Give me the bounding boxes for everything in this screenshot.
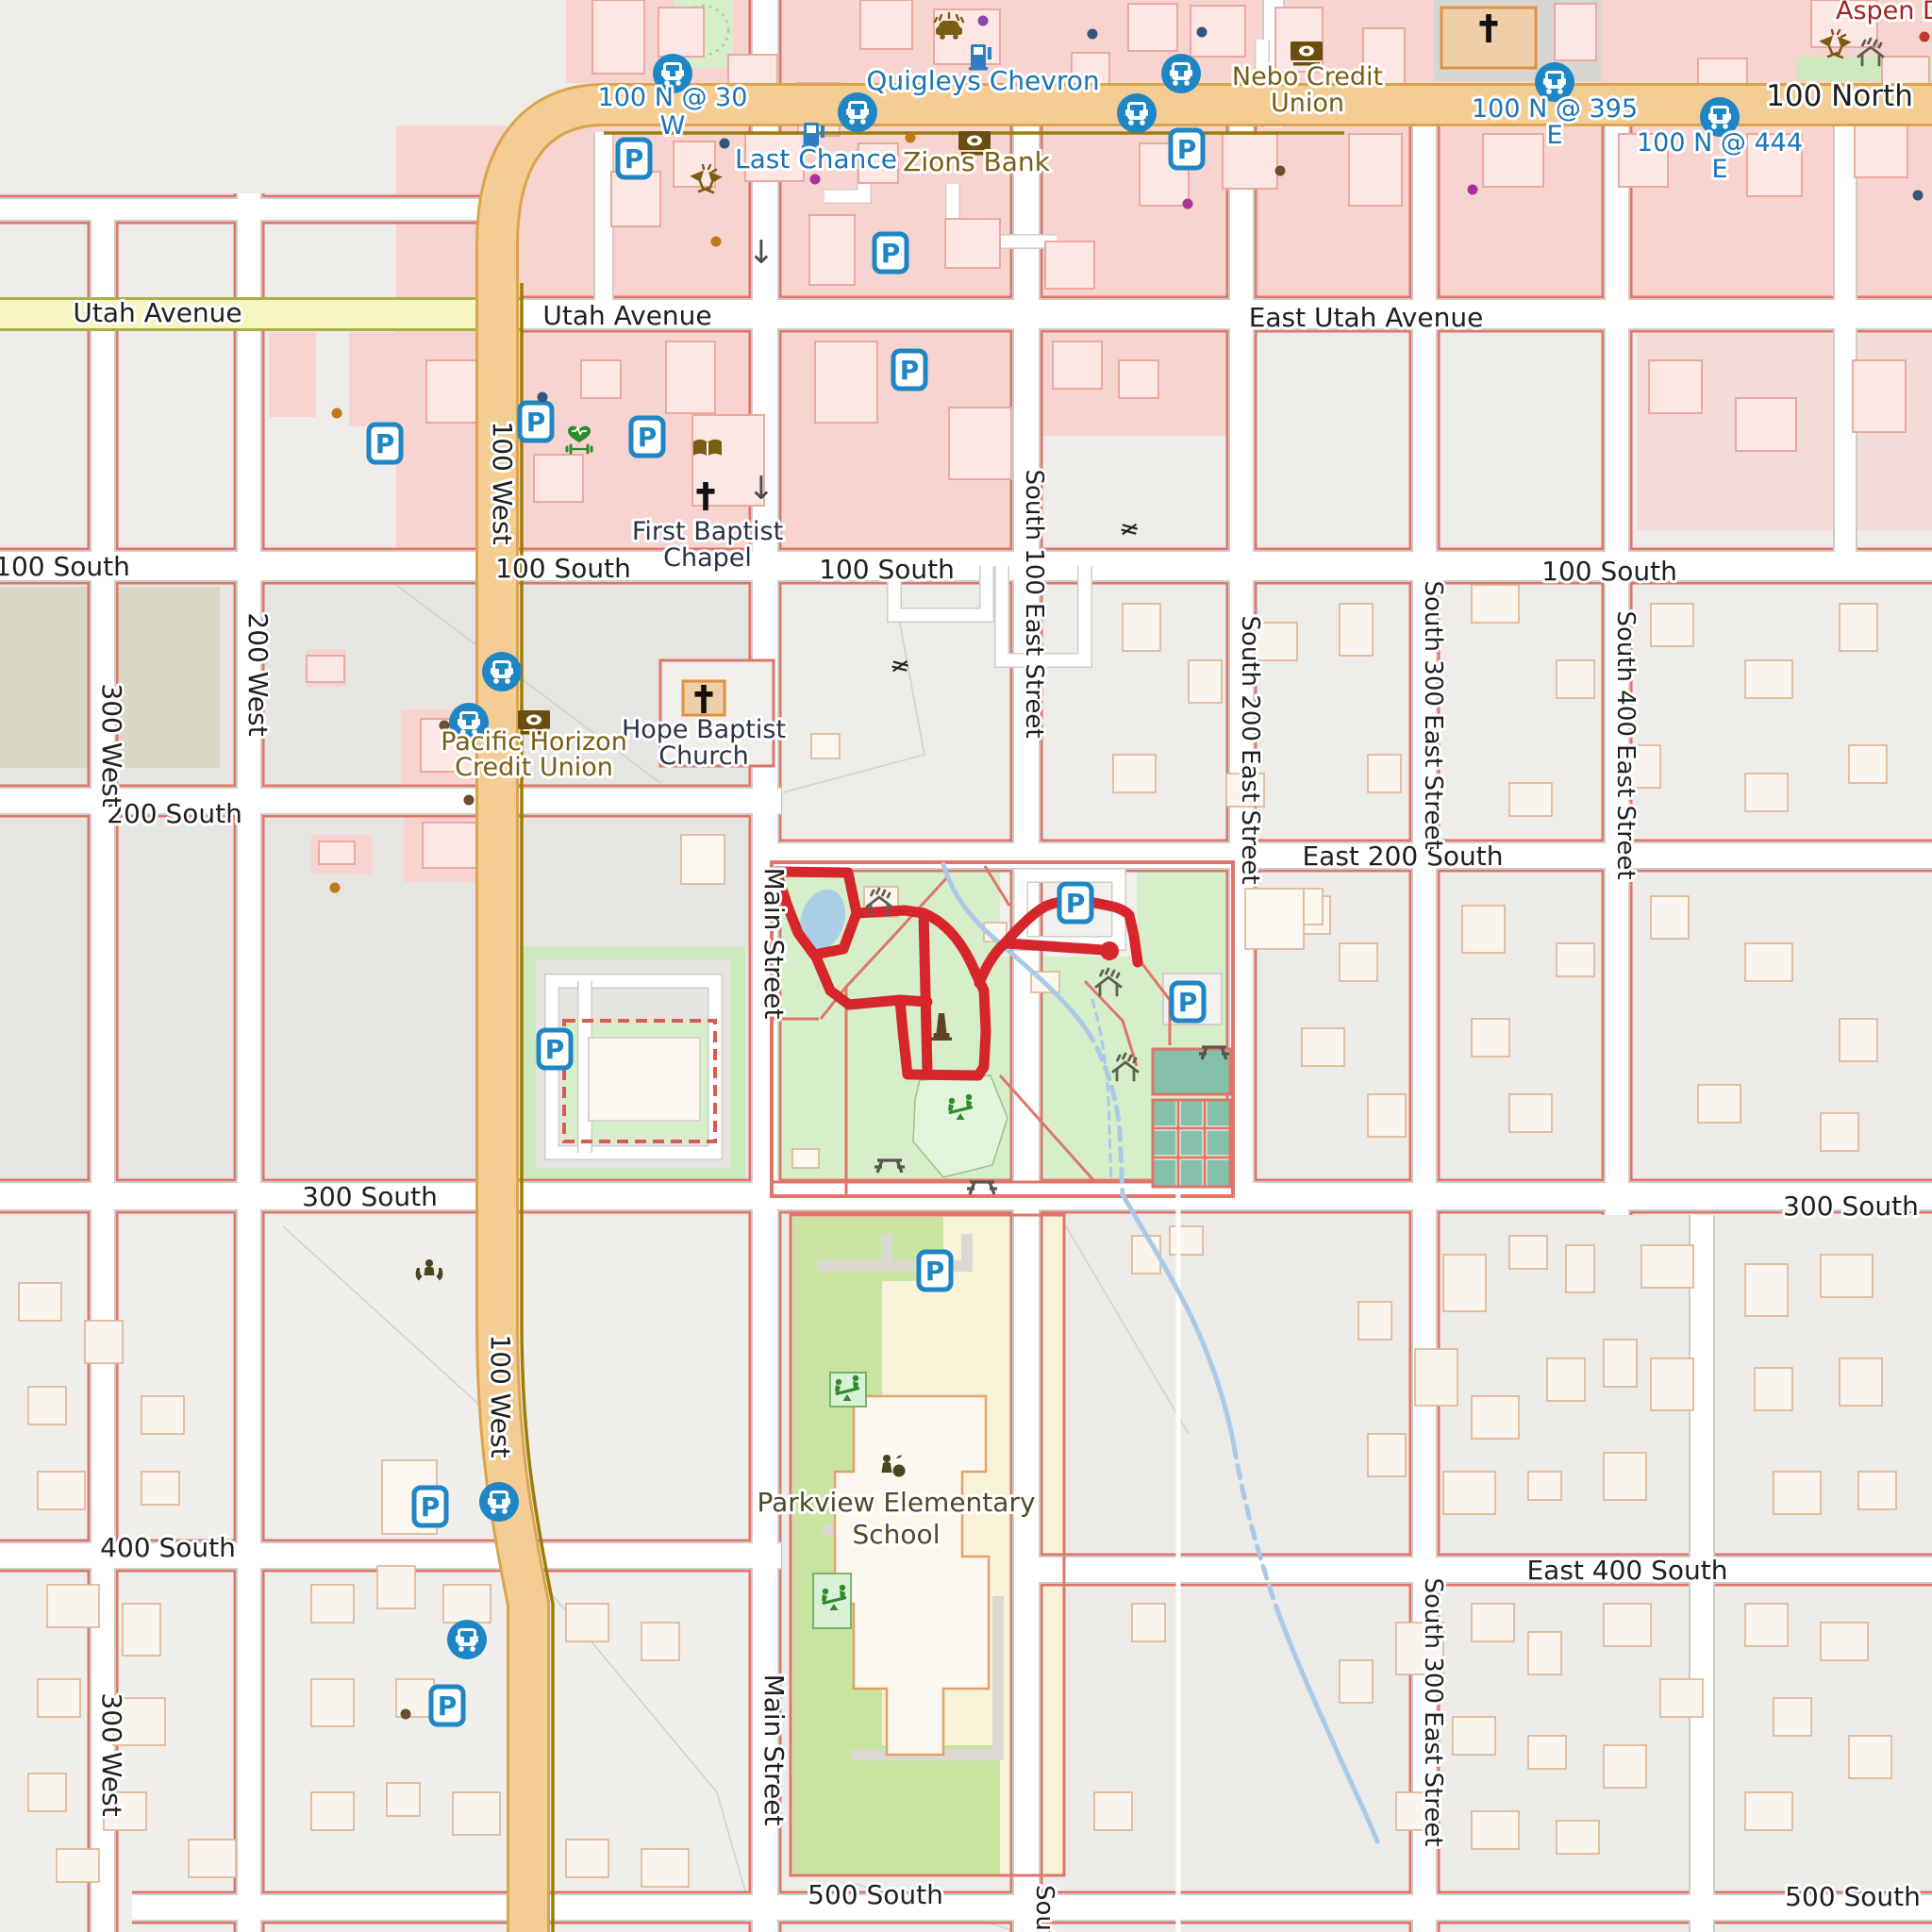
poi-dot-icon (1913, 191, 1924, 201)
poi-label: Hope Baptist (622, 715, 786, 744)
svg-text:P: P (1178, 987, 1198, 1018)
svg-text:P: P (545, 1034, 565, 1065)
svg-text:↓: ↓ (748, 234, 775, 272)
one-way-arrow-icon: ↓ (748, 470, 775, 508)
poi-label: E (1711, 155, 1727, 184)
poi-dot-icon (1183, 199, 1193, 209)
svg-text:P: P (638, 422, 658, 453)
street-label: 100 West (487, 421, 518, 544)
poi-label: School (853, 1519, 941, 1550)
parking-icon: P (1172, 983, 1204, 1021)
svg-text:P: P (925, 1256, 945, 1287)
poi-label: First Baptist (632, 517, 783, 546)
poi-dot-icon (332, 408, 342, 419)
svg-text:↓: ↓ (748, 470, 775, 508)
street-label: 500 South (808, 1879, 943, 1910)
poi-label: 100 N @ 30 (598, 83, 748, 112)
street-label: East 400 South (1526, 1555, 1727, 1586)
parking-icon: P (631, 418, 663, 456)
street-label: 300 South (302, 1181, 438, 1212)
poi-dot-icon (906, 133, 916, 143)
poi-dot-icon (1920, 32, 1930, 42)
map-canvas[interactable]: PPPPPPPPPPPPP↓↓≠≠ 100 NorthUtah AvenueUt… (0, 0, 1932, 1932)
parking-icon: P (431, 1687, 463, 1724)
poi-label: Chapel (663, 543, 752, 573)
bus-stop-icon (479, 1482, 519, 1522)
poi-dot-icon (978, 16, 989, 26)
parking-icon: P (893, 351, 925, 389)
poi-label: 100 N @ 444 (1637, 128, 1803, 158)
poi-dot-icon (1275, 166, 1286, 176)
parking-icon: P (1059, 884, 1091, 922)
poi-dot-icon (401, 1709, 411, 1720)
parking-icon: P (539, 1030, 571, 1068)
street-label: 500 South (1785, 1881, 1921, 1912)
poi-label: Nebo Credit (1232, 62, 1383, 92)
street-label: 100 North (1766, 79, 1913, 113)
street-label: 100 South (819, 554, 955, 585)
poi-label: Aspen Der (1836, 0, 1932, 25)
poi-label: Credit Union (455, 753, 613, 782)
street-label: South 100 East Street (1020, 469, 1048, 738)
svg-text:P: P (438, 1690, 458, 1722)
street-label: 300 South (1783, 1191, 1919, 1222)
svg-text:P: P (625, 143, 644, 175)
parking-icon: P (919, 1252, 951, 1290)
street-label: East 200 South (1302, 841, 1503, 872)
svg-text:P: P (900, 355, 920, 386)
street-label: Main Street (758, 868, 790, 1020)
street-label: Main Street (758, 1674, 790, 1826)
street-label: 100 South (495, 553, 631, 584)
poi-dot-icon (538, 392, 548, 403)
poi-dot-icon (1088, 29, 1098, 40)
street-label: 100 West (485, 1334, 516, 1457)
svg-text:P: P (881, 238, 901, 269)
poi-dot-icon (810, 175, 821, 185)
street-label: South 400 East Street (1611, 610, 1640, 879)
map-svg: PPPPPPPPPPPPP↓↓≠≠ 100 NorthUtah AvenueUt… (0, 0, 1932, 1932)
street-label: Utah Avenue (73, 297, 241, 328)
parking-icon: P (618, 140, 650, 177)
bus-stop-icon (482, 652, 522, 691)
parking-icon: P (520, 403, 552, 441)
street-label: 300 West (96, 683, 127, 807)
street-label: South 100 East Street (1030, 1885, 1058, 1932)
bus-stop-icon (1117, 93, 1157, 133)
parking-icon: P (1171, 130, 1203, 168)
street-label: 100 South (0, 551, 130, 582)
parking-icon: P (874, 234, 907, 272)
poi-dot-icon (711, 237, 722, 247)
svg-text:P: P (1177, 134, 1197, 165)
poi-label: 100 N @ 395 (1472, 94, 1638, 124)
poi-label: Zions Bank (903, 146, 1050, 177)
street-label: 200 West (242, 612, 274, 736)
bus-stop-icon (838, 92, 877, 132)
poi-dot-icon (1468, 185, 1478, 195)
svg-text:P: P (1066, 888, 1086, 919)
poi-label: Last Chance (735, 143, 897, 175)
parking-icon: P (369, 425, 401, 462)
street-label: South 200 East Street (1236, 615, 1264, 884)
street-label: 100 South (1541, 556, 1677, 587)
poi-dot-icon (464, 795, 475, 806)
svg-text:P: P (526, 407, 546, 438)
one-way-arrow-icon: ↓ (748, 234, 775, 272)
poi-label: Church (658, 741, 749, 771)
street-label: 300 West (96, 1692, 127, 1816)
bus-stop-icon (447, 1620, 487, 1659)
street-label: South 300 East Street (1419, 580, 1447, 849)
bus-stop-icon (1161, 54, 1201, 93)
poi-label: W (660, 111, 686, 141)
svg-text:P: P (375, 428, 395, 459)
poi-label: E (1546, 121, 1562, 150)
parking-icon: P (414, 1488, 446, 1525)
poi-label: Parkview Elementary (757, 1487, 1035, 1518)
poi-label: Quigleys Chevron (866, 65, 1099, 96)
route-endpoint (1100, 941, 1119, 960)
svg-text:P: P (421, 1491, 441, 1523)
poi-dot-icon (1197, 27, 1207, 38)
poi-dot-icon (720, 139, 730, 149)
street-label: 400 South (100, 1532, 236, 1563)
poi-label: Union (1271, 89, 1344, 118)
poi-dot-icon (330, 883, 341, 893)
street-label: Utah Avenue (542, 300, 711, 331)
street-label: East Utah Avenue (1249, 302, 1484, 333)
street-label: South 300 East Street (1419, 1577, 1447, 1846)
